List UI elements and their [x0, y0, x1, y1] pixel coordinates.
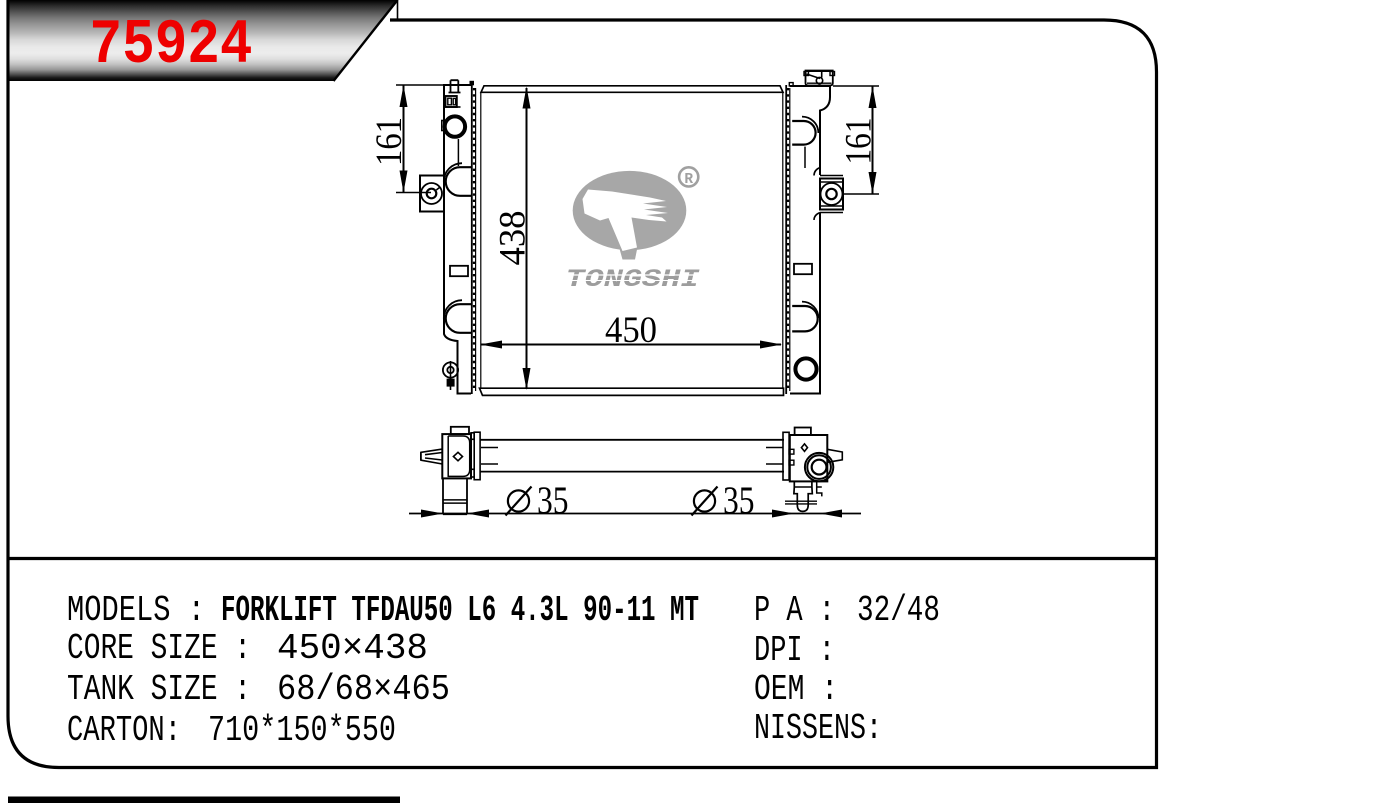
svg-text:75924: 75924	[90, 10, 253, 81]
svg-text:FORKLIFT TFDAU50 L6 4.3L 90-11: FORKLIFT TFDAU50 L6 4.3L 90-11 MT	[221, 590, 699, 631]
svg-text:450×438: 450×438	[277, 628, 428, 669]
svg-text:OEM :: OEM :	[754, 669, 838, 710]
svg-text:MODELS :: MODELS :	[67, 590, 205, 631]
svg-text:161: 161	[369, 117, 410, 166]
svg-text:450: 450	[605, 310, 657, 351]
svg-text:32/48: 32/48	[857, 590, 940, 631]
svg-text:DPI :: DPI :	[754, 630, 835, 671]
svg-text:68/68×465: 68/68×465	[277, 669, 450, 710]
svg-text:35: 35	[723, 479, 755, 522]
svg-text:161: 161	[839, 118, 880, 165]
svg-text:CARTON:: CARTON:	[67, 710, 181, 751]
svg-text:710*150*550: 710*150*550	[208, 710, 396, 751]
svg-text:P A :: P A :	[754, 590, 835, 631]
svg-text:438: 438	[493, 211, 534, 266]
svg-text:35: 35	[537, 479, 569, 522]
svg-text:TANK SIZE :: TANK SIZE :	[67, 669, 251, 710]
svg-text:R: R	[684, 172, 693, 188]
svg-text:NISSENS:: NISSENS:	[754, 708, 882, 749]
svg-text:TONGSHI: TONGSHI	[566, 265, 701, 294]
svg-text:CORE SIZE :: CORE SIZE :	[67, 628, 251, 669]
